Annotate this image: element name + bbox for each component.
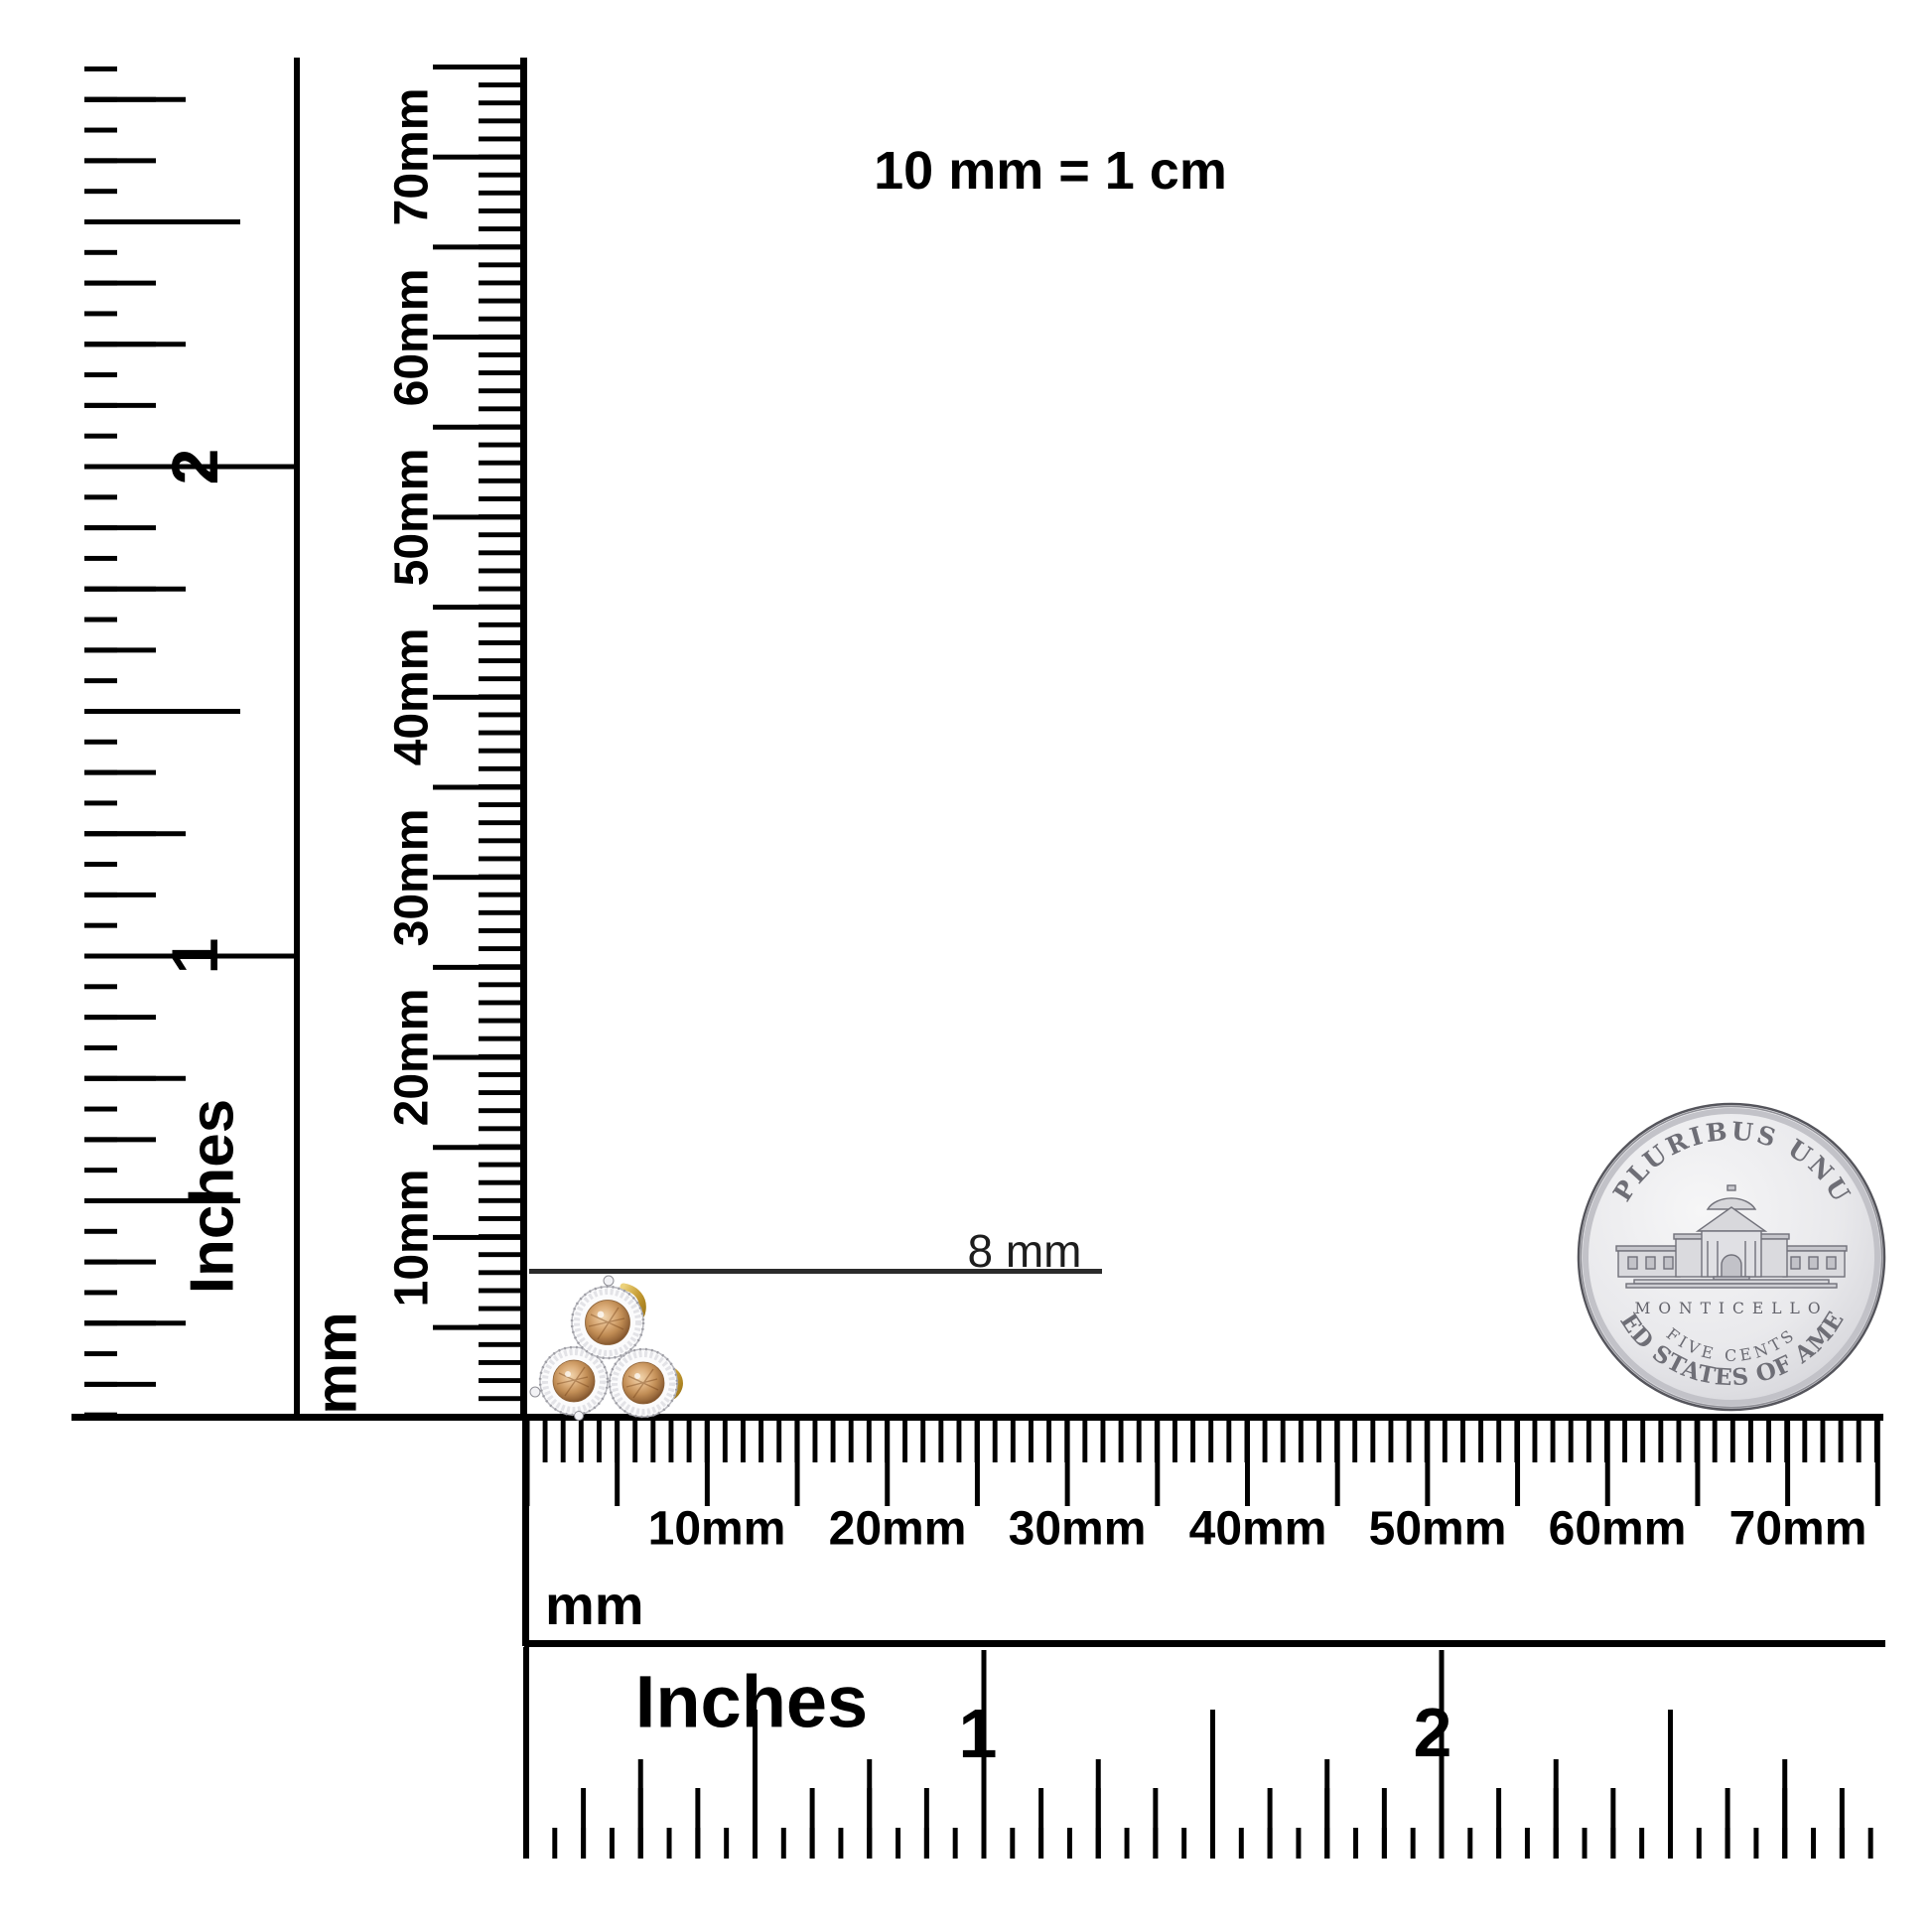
horizontal-mm-ruler-bottom-edge <box>524 1640 1885 1647</box>
stone-top <box>572 1287 643 1358</box>
prong-tip <box>604 1276 614 1286</box>
inch-mark-2: 2 <box>1414 1693 1452 1772</box>
baseline <box>71 1414 1883 1421</box>
ruler-label-60mm: 60mm <box>1549 1502 1687 1557</box>
scale-note: 10 mm = 1 cm <box>874 140 1227 202</box>
ruler-label-20mm: 20mm <box>829 1502 967 1557</box>
vertical-mm-ruler-ticks <box>433 60 520 1418</box>
vertical-mm-ruler-edge <box>520 58 527 1421</box>
ruler-label-50mm: 50mm <box>1369 1502 1507 1557</box>
prong-tip <box>575 1412 584 1421</box>
inch-mark-2: 2 <box>157 449 232 485</box>
vertical-inches-unit: Inches <box>178 1099 248 1294</box>
ruler-label-30mm: 30mm <box>1009 1502 1147 1557</box>
inch-mark-1: 1 <box>157 938 232 975</box>
ruler-label-40mm: 40mm <box>385 628 440 766</box>
jewelry-item <box>521 1269 700 1423</box>
stone-bottom-right <box>610 1349 677 1417</box>
prong-tip <box>530 1387 540 1397</box>
product-scale-image: 10 mm = 1 cm 2 1 Inches 70mm 60mm 50mm 4… <box>0 0 1932 1932</box>
ruler-label-10mm: 10mm <box>385 1170 440 1308</box>
vertical-mm-unit: mm <box>304 1311 370 1414</box>
coin-building-label: MONTICELLO <box>1634 1300 1828 1317</box>
horizontal-mm-ruler-ticks <box>527 1421 1883 1508</box>
inch-mark-1: 1 <box>959 1694 998 1773</box>
ruler-label-70mm: 70mm <box>385 88 440 226</box>
horizontal-mm-unit: mm <box>545 1573 644 1637</box>
ruler-label-70mm: 70mm <box>1729 1502 1867 1557</box>
vertical-inches-ruler-edge <box>294 58 300 1420</box>
measurement-label: 8 mm <box>968 1224 1082 1278</box>
ruler-label-50mm: 50mm <box>385 449 440 587</box>
ruler-label-10mm: 10mm <box>648 1502 786 1557</box>
coin: E PLURIBUS UNUM MONTICELLO <box>1577 1102 1886 1412</box>
ruler-label-30mm: 30mm <box>385 809 440 947</box>
horizontal-inches-unit: Inches <box>635 1660 868 1744</box>
ruler-label-40mm: 40mm <box>1189 1502 1327 1557</box>
ruler-label-20mm: 20mm <box>385 989 440 1127</box>
ruler-label-60mm: 60mm <box>385 269 440 407</box>
